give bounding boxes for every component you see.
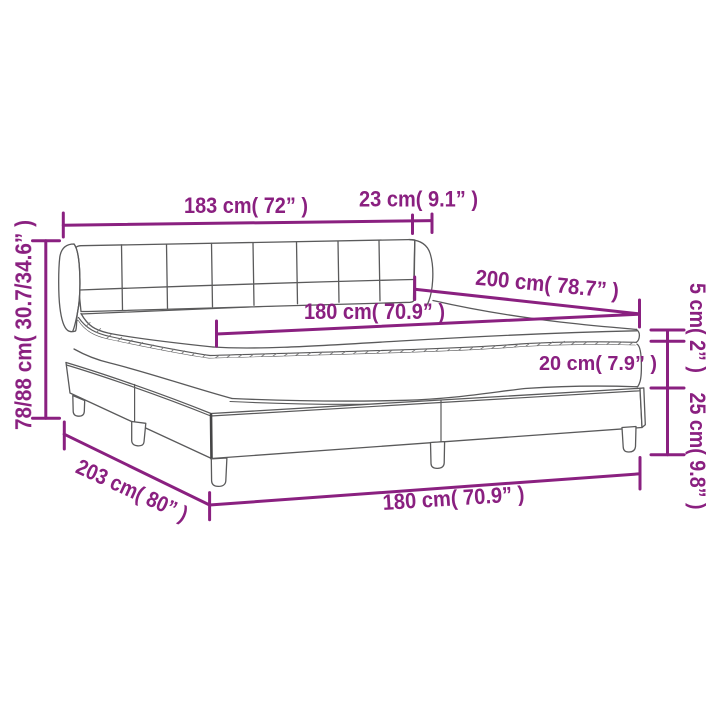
svg-text:183 cm( 72” ): 183 cm( 72” ) <box>184 193 308 218</box>
svg-text:5 cm( 2” ): 5 cm( 2” ) <box>685 283 710 373</box>
svg-text:25 cm( 9.8” ): 25 cm( 9.8” ) <box>685 393 710 510</box>
svg-text:20 cm( 7.9” ): 20 cm( 7.9” ) <box>539 352 657 375</box>
svg-text:180 cm( 70.9” ): 180 cm( 70.9” ) <box>304 299 445 324</box>
svg-text:23 cm( 9.1” ): 23 cm( 9.1” ) <box>359 187 478 212</box>
svg-text:78/88 cm( 30.7/34.6” ): 78/88 cm( 30.7/34.6” ) <box>10 220 36 430</box>
